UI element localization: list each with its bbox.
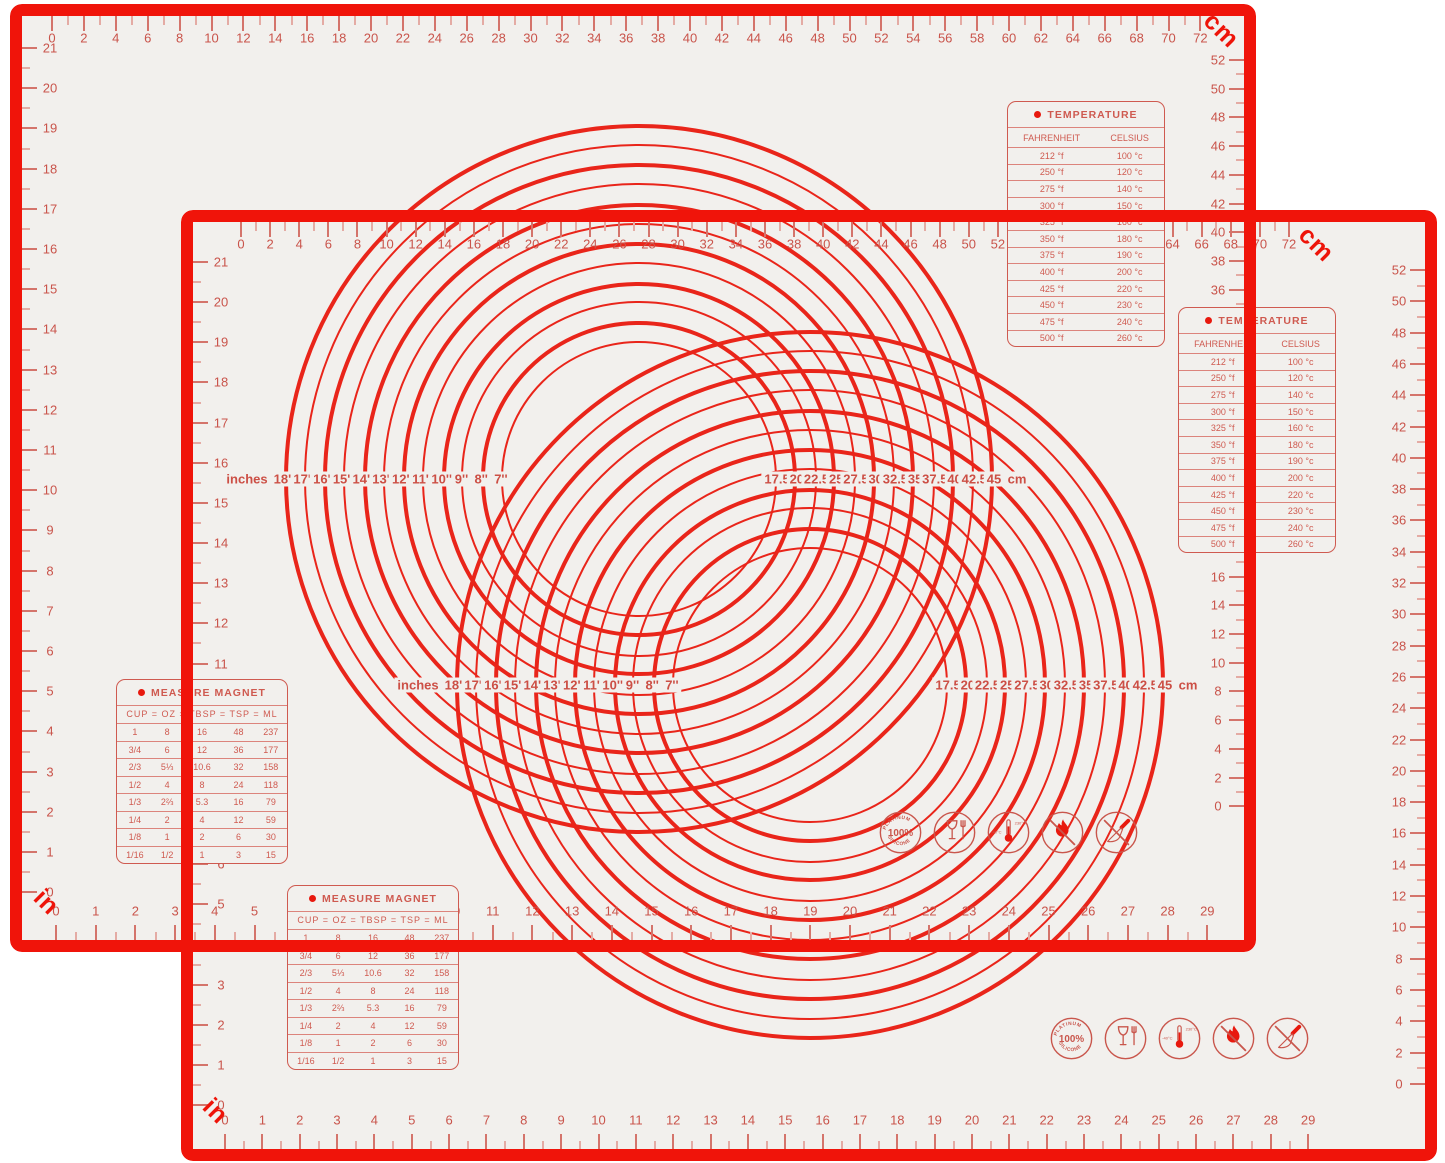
measure-value: 2/3 [117, 762, 153, 772]
cm-ruler-tick [1104, 16, 1106, 31]
flame-resistant-icon [1211, 1016, 1256, 1061]
temperature-row: 475 °f240 °c [1008, 313, 1164, 330]
cm-ruler-minor-tick [1236, 619, 1244, 621]
cm-ruler-tick [910, 222, 912, 237]
measure-value: 4 [153, 780, 182, 790]
inch-ruler-minor-tick [841, 1141, 843, 1149]
inch-ruler-tick [611, 925, 613, 940]
inch-ruler-minor-tick [467, 1141, 469, 1149]
cm-ruler-tick [1410, 926, 1425, 928]
inch-ruler-tick [1120, 1134, 1122, 1149]
inch-ruler-minor-tick [949, 932, 951, 940]
cm-ruler-tick [115, 16, 117, 31]
gauge-inch-diameter-label: 7'' [491, 472, 510, 487]
measure-row: 1/4241259 [288, 1017, 458, 1035]
food-safe-icon [1103, 1016, 1148, 1061]
cm-ruler-number: 42 [845, 238, 859, 251]
celsius-value: 160 °c [1095, 217, 1164, 227]
temperature-range-icon: -40°C 230°C [1157, 1016, 1202, 1061]
cm-ruler-number: 22 [396, 32, 410, 45]
cm-ruler-number: 24 [428, 32, 442, 45]
measure-value: 12 [222, 815, 254, 825]
measure-value: 24 [393, 986, 425, 996]
gauge-cm-diameter-label: 45 [984, 472, 1004, 487]
measure-value: 158 [426, 968, 458, 978]
cm-ruler-number: 36 [758, 238, 772, 251]
inch-ruler-minor-tick [22, 349, 30, 351]
svg-text:-40°C: -40°C [1162, 1035, 1172, 1040]
cm-ruler-minor-tick [163, 16, 165, 25]
cm-ruler-number: 4 [296, 238, 303, 251]
cm-ruler-number: 16 [1392, 827, 1406, 840]
inch-ruler-tick [193, 1064, 208, 1066]
cm-ruler-tick [1229, 777, 1244, 779]
measure-value: 30 [426, 1038, 458, 1048]
cm-ruler-number: 0 [1214, 800, 1221, 813]
inch-ruler-number: 18 [43, 162, 57, 175]
inch-ruler-number: 11 [43, 444, 57, 457]
inch-ruler-tick [1127, 925, 1129, 940]
inch-ruler-number: 23 [1077, 1114, 1091, 1127]
cm-ruler-minor-tick [99, 16, 101, 25]
fahrenheit-value: 450 °f [1179, 506, 1266, 516]
cm-ruler-number: 16 [300, 32, 314, 45]
cm-ruler-number: 46 [1392, 357, 1406, 370]
inch-ruler-number: 1 [92, 905, 99, 918]
cm-ruler-number: 14 [268, 32, 282, 45]
inch-ruler-number: 27 [1226, 1114, 1240, 1127]
svg-text:-40°C: -40°C [991, 829, 1001, 834]
inch-ruler-tick [531, 925, 533, 940]
temperature-row: 275 °f140 °c [1008, 180, 1164, 197]
temperature-table-header: FAHRENHEITCELSIUS [1008, 127, 1164, 147]
inch-ruler-tick [193, 622, 208, 624]
inch-ruler-minor-tick [22, 67, 30, 69]
celsius-value: 100 °c [1266, 357, 1335, 367]
cm-ruler-number: 34 [729, 238, 743, 251]
inch-ruler-minor-tick [193, 281, 201, 283]
temperature-table-header: FAHRENHEITCELSIUS [1179, 333, 1335, 353]
cm-ruler-number: 52 [1392, 264, 1406, 277]
inch-ruler-tick [193, 261, 208, 263]
inch-ruler-number: 20 [43, 82, 57, 95]
cm-ruler-minor-tick [575, 222, 577, 231]
cm-ruler-number: 64 [1066, 32, 1080, 45]
inch-ruler-number: 22 [1039, 1114, 1053, 1127]
cm-ruler-minor-tick [227, 16, 229, 25]
inch-ruler-tick [174, 925, 176, 940]
inch-ruler-tick [22, 730, 37, 732]
cm-ruler-tick [1288, 222, 1290, 237]
cm-ruler-number: 14 [1392, 858, 1406, 871]
cm-ruler-tick [618, 222, 620, 237]
cm-ruler-tick [1410, 707, 1425, 709]
gauge-inch-diameter-label: 8'' [471, 472, 490, 487]
measure-value: 158 [255, 762, 287, 772]
measure-value: 1 [353, 1056, 394, 1066]
temperature-row: 475 °f240 °c [1179, 519, 1335, 536]
cm-ruler-number: 18 [332, 32, 346, 45]
cm-ruler-number: 26 [1392, 670, 1406, 683]
cm-ruler-minor-tick [1417, 441, 1425, 443]
cm-ruler-minor-tick [866, 222, 868, 231]
cm-ruler-tick [785, 16, 787, 31]
cm-ruler-minor-tick [750, 222, 752, 231]
cm-ruler-number: 8 [1395, 952, 1402, 965]
cm-ruler-number: 36 [619, 32, 633, 45]
cm-ruler-minor-tick [1236, 791, 1244, 793]
measure-value: 4 [324, 986, 353, 996]
inch-ruler-minor-tick [878, 1141, 880, 1149]
cm-ruler-number: 32 [555, 32, 569, 45]
gauge-cm-unit-label: cm [1005, 472, 1030, 487]
inch-ruler-minor-tick [193, 964, 201, 966]
inch-ruler-tick [1158, 1134, 1160, 1149]
inch-ruler-minor-tick [1187, 932, 1189, 940]
inch-ruler-number: 18 [890, 1114, 904, 1127]
inch-ruler-tick [22, 248, 37, 250]
inch-ruler-number: 12 [666, 1114, 680, 1127]
cm-ruler-tick [356, 222, 358, 237]
inch-ruler-minor-tick [430, 1141, 432, 1149]
celsius-column-header: CELSIUS [1266, 339, 1335, 349]
no-knife-icon [1094, 810, 1139, 855]
inch-ruler-minor-tick [1177, 1141, 1179, 1149]
inch-ruler-number: 20 [843, 905, 857, 918]
inch-ruler-tick [22, 891, 37, 893]
cm-ruler-tick [1229, 289, 1244, 291]
cm-ruler-tick [434, 16, 436, 31]
measure-value: 2 [153, 815, 182, 825]
cm-ruler-number: 36 [1392, 514, 1406, 527]
cm-ruler-number: 4 [1395, 1015, 1402, 1028]
cm-ruler-minor-tick [1417, 973, 1425, 975]
measure-value: 8 [182, 780, 223, 790]
cm-ruler-tick [1410, 958, 1425, 960]
cm-ruler-tick [753, 16, 755, 31]
cm-ruler-tick [531, 222, 533, 237]
measure-value: 177 [255, 745, 287, 755]
inch-ruler-minor-tick [392, 1141, 394, 1149]
cm-ruler-number: 58 [970, 32, 984, 45]
cm-ruler-minor-tick [983, 222, 985, 231]
cm-ruler-number: 8 [176, 32, 183, 45]
cm-ruler-number: 16 [467, 238, 481, 251]
cm-ruler-tick [370, 16, 372, 31]
measure-row: 1/24824118 [117, 776, 287, 794]
cm-ruler-number: 20 [525, 238, 539, 251]
temperature-row: 450 °f230 °c [1179, 502, 1335, 519]
cm-ruler-tick [1410, 363, 1425, 365]
cm-ruler-tick [944, 16, 946, 31]
temperature-row: 212 °f100 °c [1008, 147, 1164, 164]
inch-ruler-number: 18 [214, 376, 228, 389]
cm-ruler-tick [560, 222, 562, 237]
inch-ruler-minor-tick [22, 590, 30, 592]
cm-ruler-tick [1410, 895, 1425, 897]
cm-ruler-number: 26 [612, 238, 626, 251]
inch-ruler-minor-tick [631, 932, 633, 940]
temperature-row: 450 °f230 °c [1008, 296, 1164, 313]
inch-ruler-minor-tick [22, 710, 30, 712]
inch-ruler-tick [134, 925, 136, 940]
cm-ruler-minor-tick [960, 16, 962, 25]
svg-text:230°C: 230°C [1186, 1027, 1197, 1032]
cm-ruler-minor-tick [371, 222, 373, 231]
inch-ruler-number: 15 [214, 496, 228, 509]
cm-ruler-minor-tick [400, 222, 402, 231]
inch-ruler-minor-tick [654, 1141, 656, 1149]
cm-ruler-minor-tick [67, 16, 69, 25]
cm-ruler-tick [880, 16, 882, 31]
cm-ruler-minor-tick [1236, 274, 1244, 276]
cm-ruler-number: 12 [1392, 890, 1406, 903]
inch-ruler-number: 17 [853, 1114, 867, 1127]
inch-ruler-minor-tick [766, 1141, 768, 1149]
inch-ruler-number: 29 [1301, 1114, 1315, 1127]
fahrenheit-value: 425 °f [1008, 284, 1095, 294]
inch-ruler-number: 21 [882, 905, 896, 918]
celsius-value: 160 °c [1266, 423, 1335, 433]
cm-unit-label: cm [1294, 222, 1339, 267]
temperature-table: TEMPERATUREFAHRENHEITCELSIUS212 °f100 °c… [1007, 101, 1165, 347]
cm-ruler-number: 66 [1194, 238, 1208, 251]
temperature-row: 212 °f100 °c [1179, 353, 1335, 370]
cm-ruler-minor-tick [1417, 566, 1425, 568]
measure-value: 1/16 [288, 1056, 324, 1066]
cm-ruler-minor-tick [514, 16, 516, 25]
cm-ruler-minor-tick [488, 222, 490, 231]
inch-ruler-number: 1 [217, 1059, 224, 1072]
measure-value: 8 [324, 933, 353, 943]
inch-ruler-number: 29 [1200, 905, 1214, 918]
cm-ruler-number: 48 [1211, 111, 1225, 124]
measure-magnet-title: MEASURE MAGNET [117, 680, 287, 705]
red-dot-icon [309, 895, 316, 902]
cm-ruler-tick [976, 16, 978, 31]
inch-ruler-number: 2 [217, 1018, 224, 1031]
cm-ruler-number: 52 [991, 238, 1005, 251]
measure-magnet-title-text: MEASURE MAGNET [151, 687, 266, 699]
measure-value: 237 [426, 933, 458, 943]
inch-ruler-tick [261, 1134, 263, 1149]
cm-ruler-minor-tick [801, 16, 803, 25]
fahrenheit-value: 250 °f [1179, 373, 1266, 383]
fahrenheit-column-header: FAHRENHEIT [1008, 133, 1095, 143]
temperature-row: 425 °f220 °c [1179, 486, 1335, 503]
measure-row: 181648237 [117, 723, 287, 741]
inch-ruler-minor-tick [22, 831, 30, 833]
celsius-value: 220 °c [1095, 284, 1164, 294]
measure-value: 1/16 [117, 850, 153, 860]
cm-ruler-number: 50 [1392, 295, 1406, 308]
inch-ruler-number: 19 [803, 905, 817, 918]
cm-ruler-number: 10 [379, 238, 393, 251]
cm-unit-label: cm [1199, 8, 1244, 53]
cm-ruler-number: 10 [1211, 656, 1225, 669]
cm-ruler-number: 42 [1211, 197, 1225, 210]
cm-ruler-minor-tick [865, 16, 867, 25]
cm-ruler-minor-tick [1236, 188, 1244, 190]
cm-ruler-minor-tick [1088, 16, 1090, 25]
temperature-row: 425 °f220 °c [1008, 280, 1164, 297]
cm-ruler-number: 28 [641, 238, 655, 251]
inch-ruler-tick [22, 127, 37, 129]
measure-value: 2 [324, 1021, 353, 1031]
measure-value: 6 [153, 745, 182, 755]
fahrenheit-value: 250 °f [1008, 167, 1095, 177]
gauge-inch-diameter-label: 9'' [452, 472, 471, 487]
measure-row: 1/24824118 [288, 982, 458, 1000]
no-knife-icon [1265, 1016, 1310, 1061]
cm-ruler-minor-tick [578, 16, 580, 25]
cm-ruler-number: 38 [651, 32, 665, 45]
inch-ruler-number: 17 [724, 905, 738, 918]
cm-ruler-tick [466, 16, 468, 31]
inch-ruler-tick [193, 903, 208, 905]
cm-ruler-tick [386, 222, 388, 237]
inch-ruler-number: 16 [43, 243, 57, 256]
measure-value: 24 [222, 780, 254, 790]
celsius-value: 150 °c [1095, 201, 1164, 211]
cm-ruler-number: 68 [1129, 32, 1143, 45]
measure-row: 1/161/21315 [288, 1052, 458, 1070]
inch-ruler-minor-tick [193, 562, 201, 564]
cm-ruler-minor-tick [1417, 285, 1425, 287]
cm-ruler-tick [1229, 88, 1244, 90]
cm-ruler-tick [402, 16, 404, 31]
inch-ruler-number: 8 [46, 564, 53, 577]
inch-ruler-minor-tick [552, 932, 554, 940]
inch-ruler-minor-tick [193, 1004, 201, 1006]
celsius-value: 190 °c [1266, 456, 1335, 466]
cm-ruler-tick [1410, 394, 1425, 396]
fahrenheit-value: 400 °f [1179, 473, 1266, 483]
cm-ruler-tick [327, 222, 329, 237]
measure-value: 6 [324, 951, 353, 961]
cm-ruler-minor-tick [386, 16, 388, 25]
inch-ruler-minor-tick [1028, 932, 1030, 940]
inch-ruler-number: 14 [605, 905, 619, 918]
inch-ruler-tick [336, 1134, 338, 1149]
cm-ruler-minor-tick [808, 222, 810, 231]
temperature-row: 375 °f190 °c [1179, 453, 1335, 470]
measure-value: 5⅓ [324, 968, 353, 978]
cm-ruler-minor-tick [1417, 785, 1425, 787]
cm-ruler-tick [274, 16, 276, 31]
cm-ruler-number: 70 [1253, 238, 1267, 251]
measure-value: 12 [393, 1021, 425, 1031]
inch-ruler-minor-tick [1107, 932, 1109, 940]
inch-ruler-minor-tick [22, 791, 30, 793]
inch-ruler-minor-tick [1139, 1141, 1141, 1149]
cm-ruler-number: 30 [670, 238, 684, 251]
temperature-row: 325 °f160 °c [1008, 213, 1164, 230]
cm-ruler-tick [1259, 222, 1261, 237]
inch-ruler-minor-tick [75, 932, 77, 940]
pastry-mats-product-image: inches18''17''16''15''14''13''12''11''10… [0, 0, 1445, 1163]
inch-ruler-minor-tick [472, 932, 474, 940]
inch-ruler-tick [635, 1134, 637, 1149]
measure-magnet-table: MEASURE MAGNETCUP = OZ = TBSP = TSP = ML… [116, 679, 288, 864]
cm-ruler-tick [1229, 203, 1244, 205]
measure-value: 1/2 [324, 1056, 353, 1066]
celsius-column-header: CELSIUS [1095, 133, 1164, 143]
inch-ruler-number: 14 [214, 537, 228, 550]
cm-ruler-tick [1410, 832, 1425, 834]
inch-ruler-number: 14 [43, 323, 57, 336]
inch-ruler-minor-tick [194, 932, 196, 940]
cm-ruler-minor-tick [1236, 159, 1244, 161]
measure-value: 2⅔ [324, 1003, 353, 1013]
inch-ruler-tick [22, 328, 37, 330]
fahrenheit-value: 400 °f [1008, 267, 1095, 277]
cm-ruler-tick [1410, 488, 1425, 490]
inch-ruler-tick [193, 582, 208, 584]
cm-ruler-tick [1410, 645, 1425, 647]
inch-ruler-minor-tick [22, 228, 30, 230]
cm-ruler-number: 46 [1211, 140, 1225, 153]
inch-ruler-minor-tick [22, 871, 30, 873]
temperature-title-text: TEMPERATURE [1047, 109, 1137, 121]
inch-ruler-tick [485, 1134, 487, 1149]
cm-ruler-minor-tick [1236, 590, 1244, 592]
cm-ruler-tick [1229, 260, 1244, 262]
cm-ruler-minor-tick [779, 222, 781, 231]
measure-row: 1/4241259 [117, 811, 287, 829]
inch-ruler-minor-tick [1251, 1141, 1253, 1149]
inch-ruler-minor-tick [616, 1141, 618, 1149]
cm-ruler-minor-tick [1245, 222, 1247, 231]
inch-ruler-minor-tick [115, 932, 117, 940]
cm-ruler-tick [1136, 16, 1138, 31]
cm-ruler-minor-tick [1417, 723, 1425, 725]
fahrenheit-value: 475 °f [1179, 523, 1266, 533]
cm-ruler-tick [1229, 662, 1244, 664]
measure-value: 15 [426, 1056, 458, 1066]
cm-ruler-tick [677, 222, 679, 237]
cm-ruler-minor-tick [322, 16, 324, 25]
cm-ruler-number: 6 [1214, 714, 1221, 727]
measure-value: 2 [182, 832, 223, 842]
inch-ruler-tick [22, 811, 37, 813]
inch-ruler-number: 3 [46, 765, 53, 778]
cm-ruler-number: 6 [1395, 983, 1402, 996]
celsius-value: 190 °c [1095, 250, 1164, 260]
inch-ruler-number: 5 [251, 905, 258, 918]
cm-ruler-minor-tick [1417, 535, 1425, 537]
inch-ruler-tick [22, 168, 37, 170]
cm-ruler-minor-tick [1236, 762, 1244, 764]
measure-value: 1/3 [117, 797, 153, 807]
inch-ruler-number: 11 [486, 905, 500, 918]
inch-ruler-minor-tick [990, 1141, 992, 1149]
cm-ruler-tick [625, 16, 627, 31]
inch-ruler-tick [373, 1134, 375, 1149]
cm-ruler-tick [1410, 457, 1425, 459]
inch-ruler-tick [193, 502, 208, 504]
fahrenheit-value: 500 °f [1008, 333, 1095, 343]
inch-ruler-minor-tick [193, 923, 201, 925]
inch-ruler-minor-tick [22, 550, 30, 552]
cm-ruler-tick [657, 16, 659, 31]
measure-value: 2/3 [288, 968, 324, 978]
cm-ruler-number: 12 [1211, 628, 1225, 641]
cm-ruler-tick [880, 222, 882, 237]
measure-value: 3 [393, 1056, 425, 1066]
inch-ruler-number: 18 [763, 905, 777, 918]
inch-ruler-number: 21 [214, 256, 228, 269]
